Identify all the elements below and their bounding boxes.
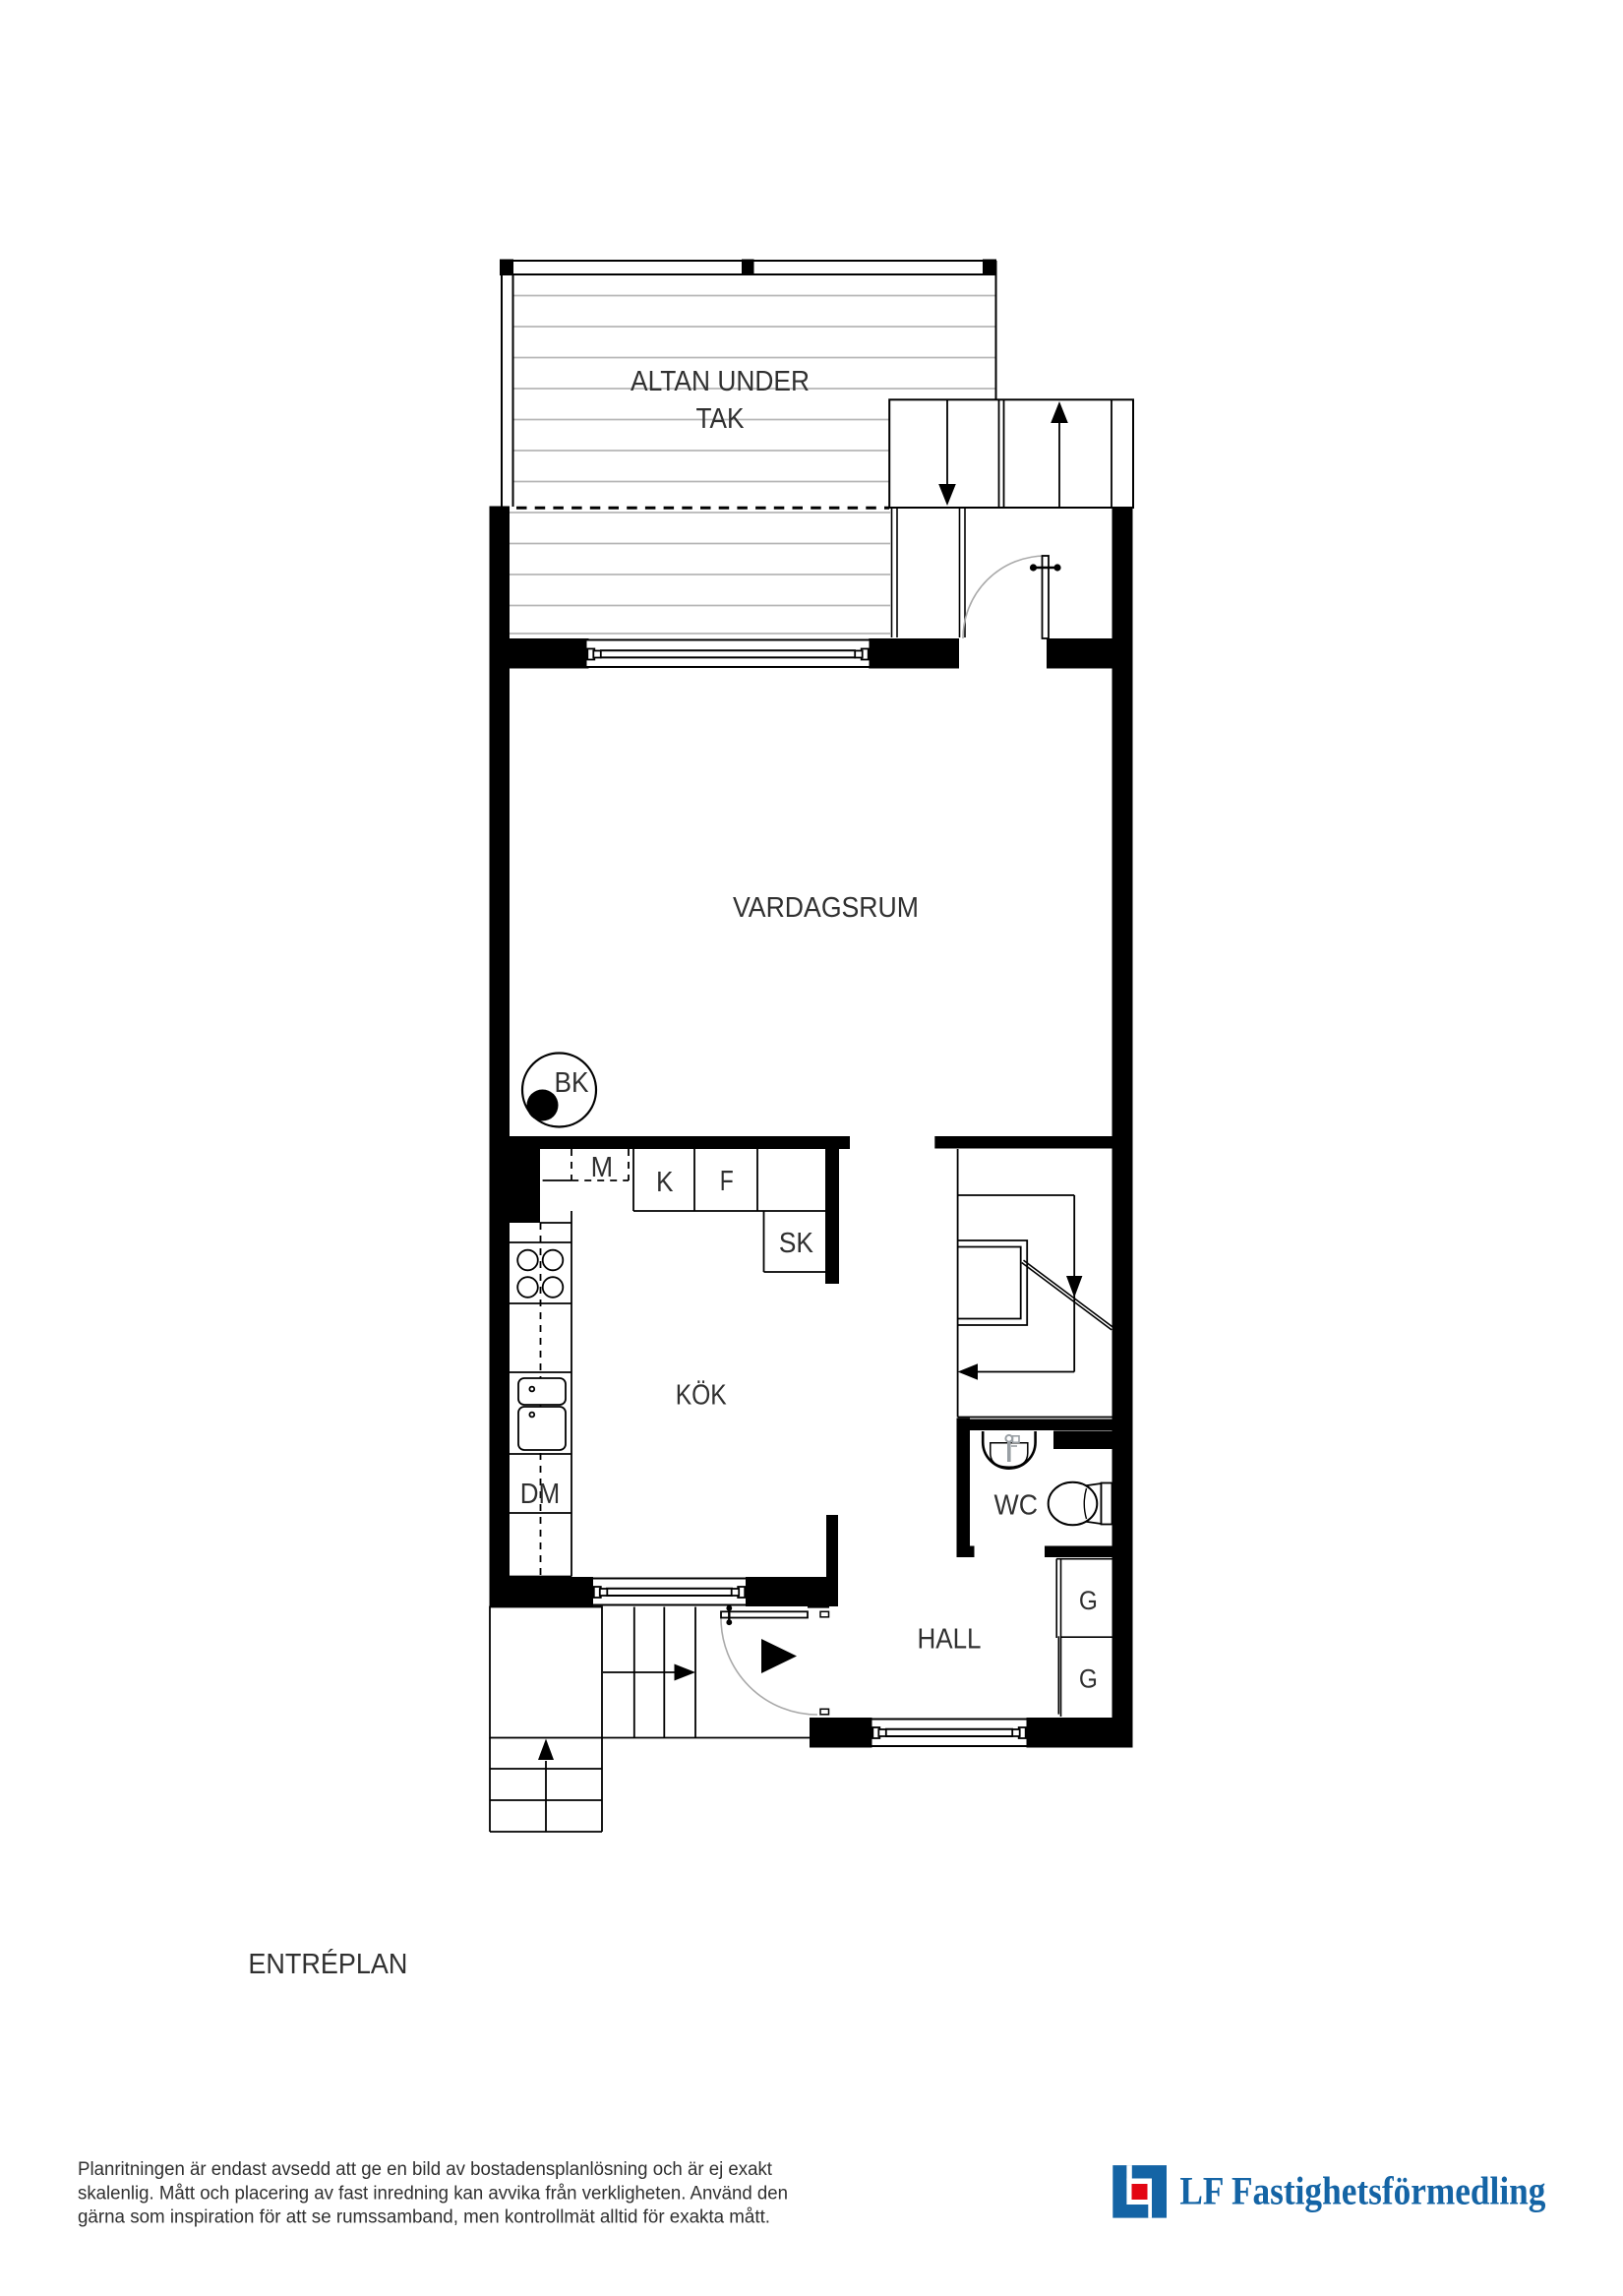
svg-text:VARDAGSRUM: VARDAGSRUM [733,892,919,924]
svg-text:WC: WC [994,1489,1039,1521]
svg-text:DM: DM [520,1479,561,1510]
svg-text:M: M [591,1152,614,1183]
svg-text:TAK: TAK [696,403,746,435]
svg-text:gärna som inspiration för att: gärna som inspiration för att se rumssam… [78,2207,770,2228]
svg-text:KÖK: KÖK [676,1379,728,1411]
svg-text:Planritningen är endast avsedd: Planritningen är endast avsedd att ge en… [78,2159,773,2180]
svg-text:ALTAN UNDER: ALTAN UNDER [631,366,810,397]
svg-text:G: G [1079,1586,1098,1615]
svg-text:LF Fastighetsförmedling: LF Fastighetsförmedling [1179,2169,1545,2213]
svg-text:F: F [720,1166,734,1197]
svg-text:BK: BK [555,1067,590,1099]
svg-text:ENTRÉPLAN: ENTRÉPLAN [248,1948,407,1980]
svg-text:G: G [1079,1663,1098,1693]
svg-text:K: K [656,1167,674,1198]
svg-text:skalenlig. Mått och placering: skalenlig. Mått och placering av fast in… [78,2183,788,2204]
svg-text:SK: SK [779,1228,814,1259]
svg-text:HALL: HALL [918,1624,982,1656]
